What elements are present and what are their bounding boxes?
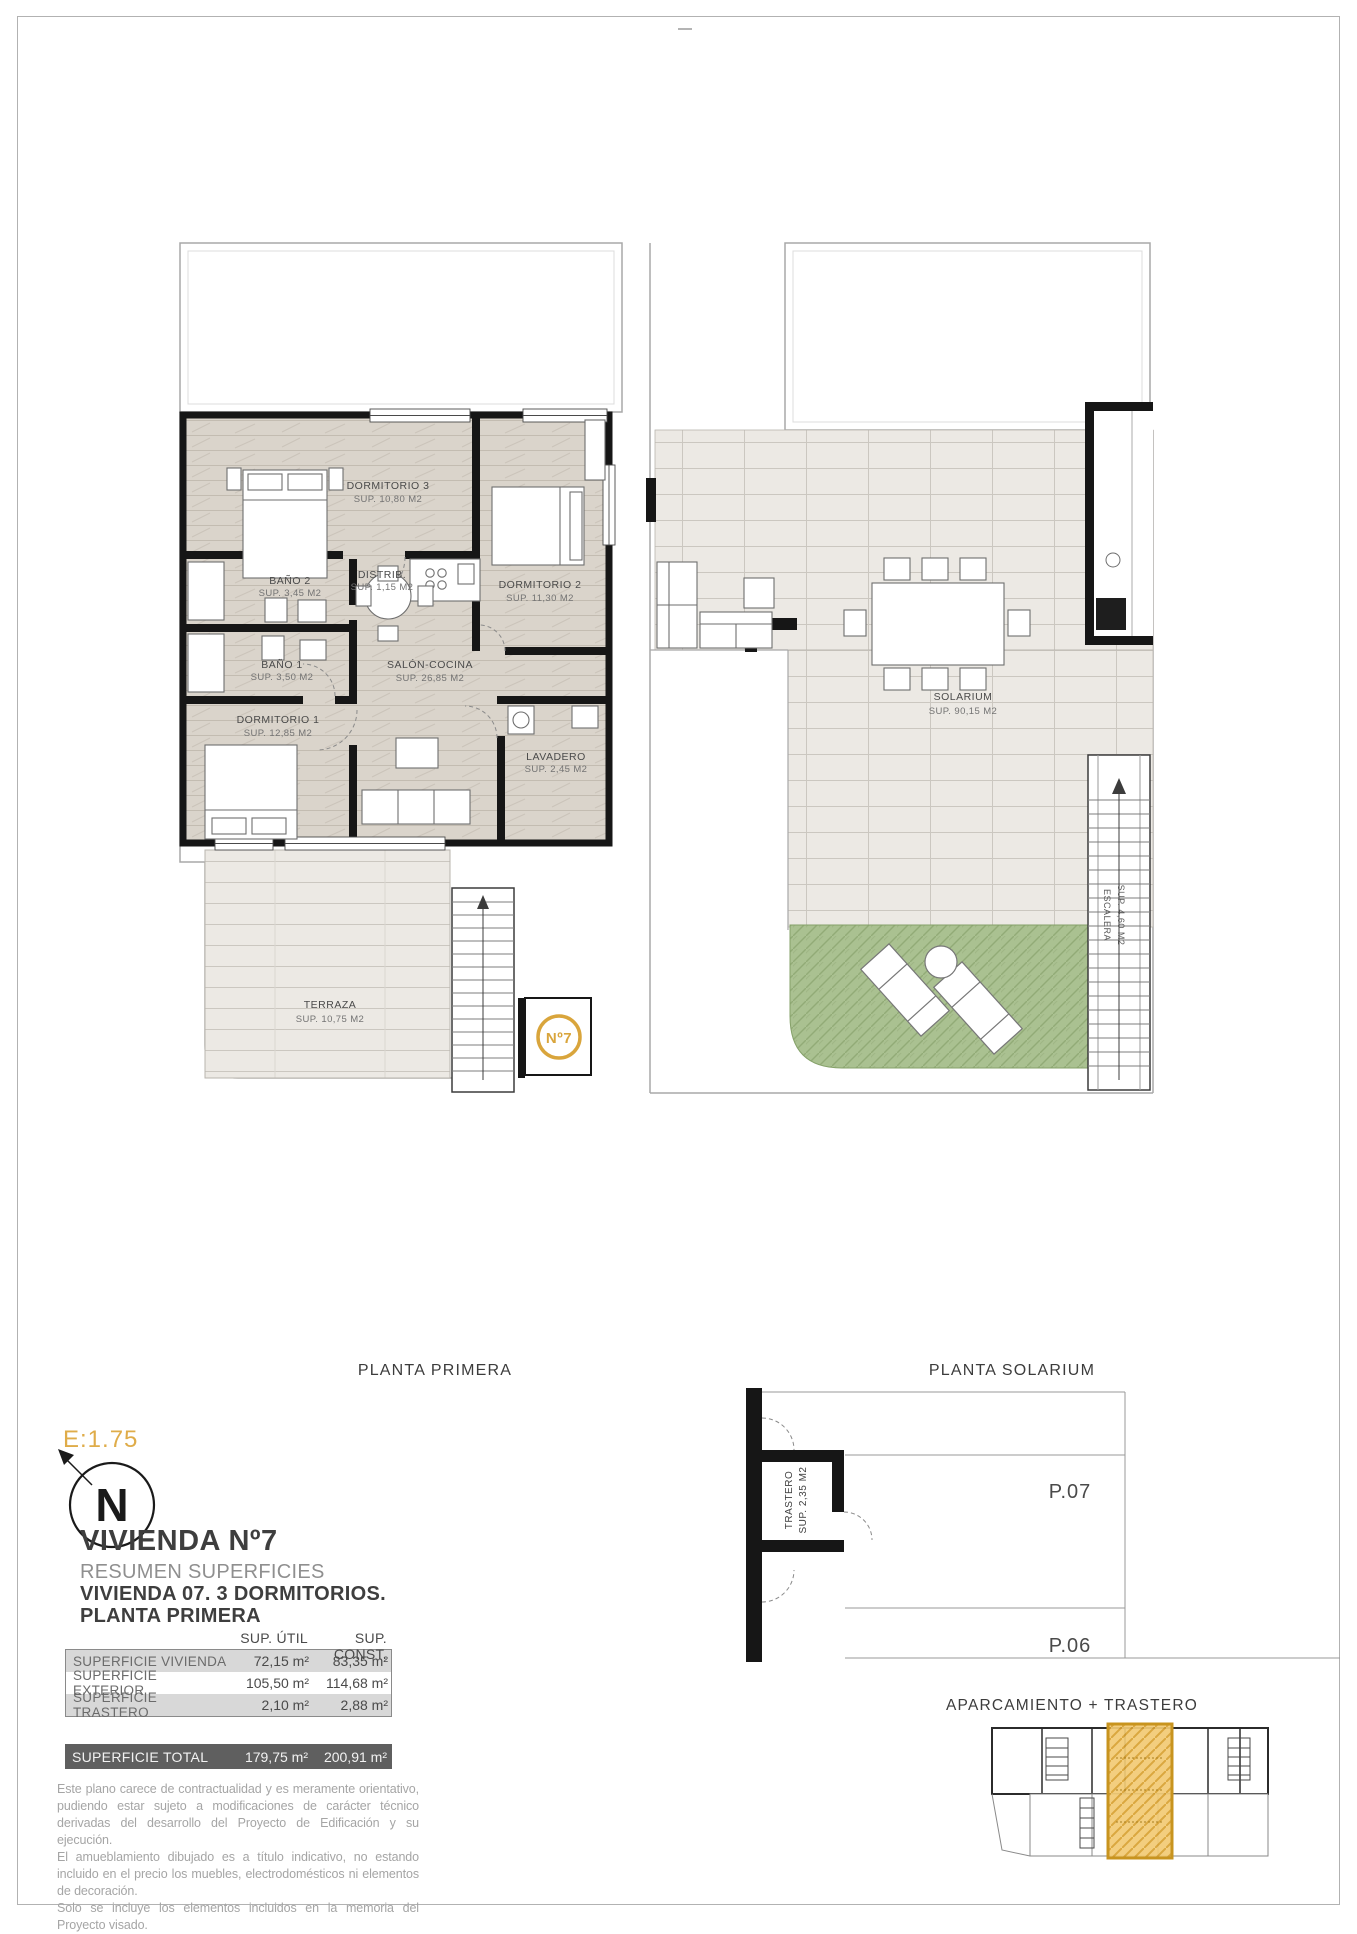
room-label-lavadero: LAVADERO (526, 751, 586, 763)
unit-number-label: Nº7 (546, 1030, 572, 1047)
room-area-salon-cocina: SUP. 26,85 M2 (396, 673, 464, 684)
toilet-1 (262, 636, 284, 660)
disclaimer-paragraph: El amueblamiento dibujado es a título in… (57, 1849, 419, 1900)
room-label-dormitorio1: DORMITORIO 1 (237, 714, 320, 726)
trastero-door-arcs (762, 1418, 872, 1602)
trastero-area: SUP. 2,35 M2 (798, 1467, 809, 1534)
stairs-primera (452, 888, 514, 1092)
room-area-bano2: SUP. 3,45 M2 (259, 588, 322, 599)
bathtub-2 (188, 562, 224, 620)
title-block: VIVIENDA Nº7 RESUMEN SUPERFICIES VIVIEND… (80, 1527, 440, 1627)
room-label-solarium: SOLARIUM (934, 691, 993, 703)
parking-space-p07: P.07 (1049, 1481, 1092, 1503)
plan-planta-solarium: ESCALERA SUP. 4,60 M2 SOLARIUM SUP. 90,1… (646, 243, 1153, 1379)
trastero-walls (746, 1388, 844, 1662)
scale-label: E:1.75 (63, 1426, 138, 1453)
floor-description: PLANTA PRIMERA (80, 1605, 440, 1627)
parking-space-p06: P.06 (1049, 1635, 1092, 1657)
legal-disclaimer: Este plano carece de contractualidad y e… (57, 1781, 419, 1934)
room-label-terraza: TERRAZA (304, 999, 357, 1011)
column-header-sup-util: SUP. ÚTIL (230, 1630, 308, 1646)
dwelling-description: VIVIENDA 07. 3 DORMITORIOS. (80, 1583, 440, 1605)
column-header-sup-const: SUP. CONST. (308, 1630, 392, 1646)
coffee-table (396, 738, 438, 768)
caption-aparcamiento-trastero: APARCAMIENTO + TRASTERO (946, 1697, 1198, 1714)
solarium-patio-outline (785, 243, 1150, 430)
room-label-salon-cocina: SALÓN-COCINA (387, 658, 473, 671)
plan-planta-primera: Nº7 DORMITORIO 3 SUP. 10,80 M2 DORMITORI… (180, 243, 622, 1379)
room-area-dormitorio1: SUP. 12,85 M2 (244, 728, 312, 739)
side-table (744, 578, 774, 608)
trastero-plan: TRASTERO SUP. 2,35 M2 P.07 P.06 APARCAMI… (746, 1388, 1340, 1714)
room-area-distribuidor: SUP. 1,15 M2 (351, 582, 414, 593)
sink-1 (300, 640, 326, 660)
room-area-dormitorio2: SUP. 11,30 M2 (506, 593, 574, 604)
room-area-solarium: SUP. 90,15 M2 (929, 706, 997, 717)
room-label-dormitorio2: DORMITORIO 2 (499, 579, 582, 591)
site-locator-plan (992, 1724, 1268, 1858)
disclaimer-paragraph: Este plano carece de contractualidad y e… (57, 1781, 419, 1849)
page-title: VIVIENDA Nº7 (80, 1527, 440, 1556)
stairs-solarium: ESCALERA SUP. 4,60 M2 (1088, 755, 1150, 1090)
trastero-label: TRASTERO (784, 1471, 795, 1529)
laundry-sink (572, 706, 598, 728)
room-label-distribuidor: DISTRIB. (358, 569, 406, 581)
caption-planta-primera: PLANTA PRIMERA (358, 1362, 512, 1379)
subtitle: RESUMEN SUPERFICIES (80, 1561, 440, 1583)
table-row-trastero: SUPERFICIE TRASTERO 2,10 m² 2,88 m² (66, 1694, 391, 1716)
sink-2 (298, 600, 326, 622)
solarium-kitchen-niche (1085, 402, 1153, 645)
surface-table-body: SUPERFICIE VIVIENDA 72,15 m² 83,35 m² SU… (65, 1649, 392, 1717)
room-area-lavadero: SUP. 2,45 M2 (525, 764, 588, 775)
terraza-floor (205, 850, 450, 1078)
sofa (362, 790, 470, 824)
room-label-dormitorio3: DORMITORIO 3 (347, 480, 430, 492)
room-area-dormitorio3: SUP. 10,80 M2 (354, 494, 422, 505)
room-area-escalera: SUP. 4,60 M2 (1116, 885, 1126, 946)
surface-table: SUP. ÚTIL SUP. CONST. SUPERFICIE VIVIEND… (65, 1630, 392, 1717)
room-label-escalera: ESCALERA (1102, 889, 1112, 941)
north-letter: N (95, 1479, 128, 1531)
surface-table-header: SUP. ÚTIL SUP. CONST. (65, 1630, 392, 1646)
lounger-table (925, 946, 957, 978)
dining-table (872, 583, 1004, 665)
bathtub-1 (188, 634, 224, 692)
room-area-bano1: SUP. 3,50 M2 (251, 672, 314, 683)
washer (508, 706, 534, 734)
highlighted-unit (1108, 1724, 1172, 1858)
room-label-bano2: BAÑO 2 (269, 574, 311, 587)
disclaimer-paragraph: Solo se incluye los elementos incluidos … (57, 1900, 419, 1934)
room-area-terraza: SUP. 10,75 M2 (296, 1014, 364, 1025)
toilet-2 (265, 598, 287, 622)
patio-outline (180, 243, 622, 412)
room-label-bano1: BAÑO 1 (261, 658, 303, 671)
caption-planta-solarium: PLANTA SOLARIUM (929, 1362, 1095, 1379)
table-total-row: SUPERFICIE TOTAL 179,75 m² 200,91 m² (65, 1744, 392, 1769)
